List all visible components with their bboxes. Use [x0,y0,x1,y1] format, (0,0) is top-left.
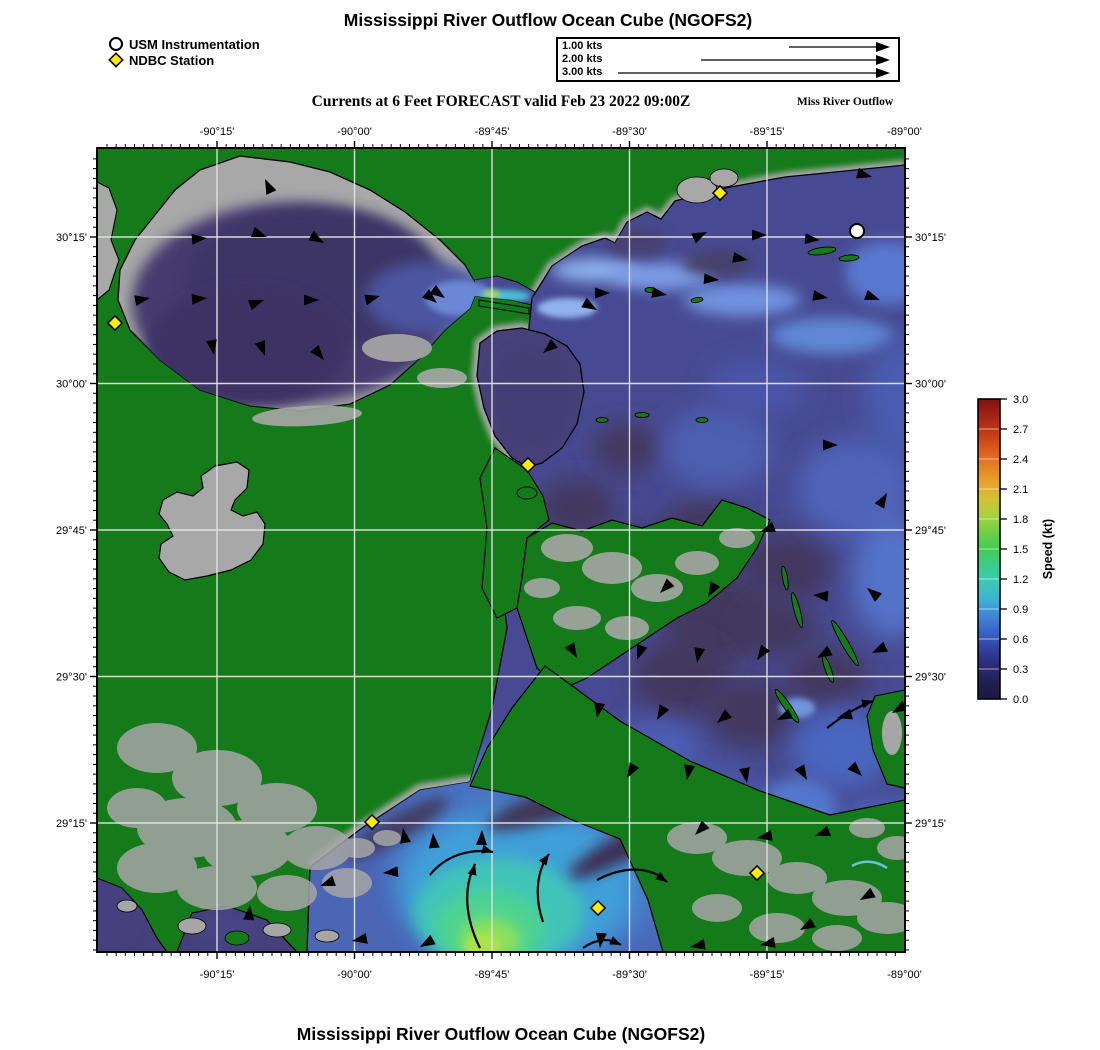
lon-tick-label: -89°30' [612,126,647,138]
lat-tick-label: 29°45' [56,525,87,537]
colorbar-label: Speed (kt) [1041,519,1055,579]
usm-station-marker [850,224,864,238]
colorbar: 3.02.72.42.11.81.51.20.90.60.30.0 [978,394,1028,706]
lon-tick-label: -89°45' [475,969,510,981]
lon-tick-label: -89°30' [612,969,647,981]
colorbar-tick-label: 1.5 [1013,544,1028,556]
lat-tick-label: 30°00' [915,379,946,391]
right-edge-gray [882,711,902,755]
lat-tick-label: 30°15' [56,232,87,244]
colorbar-tick-label: 3.0 [1013,394,1028,406]
lon-tick-label: -89°15' [750,969,785,981]
lon-tick-label: -89°15' [750,126,785,138]
lat-tick-label: 30°15' [915,232,946,244]
colorbar-tick-label: 0.9 [1013,604,1028,616]
map-area [90,148,945,968]
colorbar-tick-label: 0.0 [1013,694,1028,706]
colorbar-tick-label: 1.2 [1013,574,1028,586]
map-canvas: -90°15'-90°15'-90°00'-90°00'-89°45'-89°4… [0,0,1100,1050]
lon-tick-label: -90°00' [337,126,372,138]
colorbar-tick-label: 2.7 [1013,424,1028,436]
colorbar-tick-label: 0.3 [1013,664,1028,676]
colorbar-tick-label: 0.6 [1013,634,1028,646]
figure: Mississippi River Outflow Ocean Cube (NG… [0,0,1100,1050]
footer-title: Mississippi River Outflow Ocean Cube (NG… [297,1024,705,1045]
lon-tick-label: -90°15' [200,969,235,981]
colorbar-tick-label: 2.1 [1013,484,1028,496]
lon-tick-label: -90°00' [337,969,372,981]
lat-tick-label: 30°00' [56,379,87,391]
colorbar-tick-label: 2.4 [1013,454,1028,466]
lat-tick-label: 29°15' [915,818,946,830]
lat-tick-label: 29°15' [56,818,87,830]
colorbar-tick-label: 1.8 [1013,514,1028,526]
lon-tick-label: -89°00' [887,126,922,138]
lon-tick-label: -89°00' [887,969,922,981]
lat-tick-label: 29°45' [915,525,946,537]
lon-tick-label: -89°45' [475,126,510,138]
lat-tick-label: 29°30' [56,672,87,684]
lat-tick-label: 29°30' [915,672,946,684]
lon-tick-label: -90°15' [200,126,235,138]
